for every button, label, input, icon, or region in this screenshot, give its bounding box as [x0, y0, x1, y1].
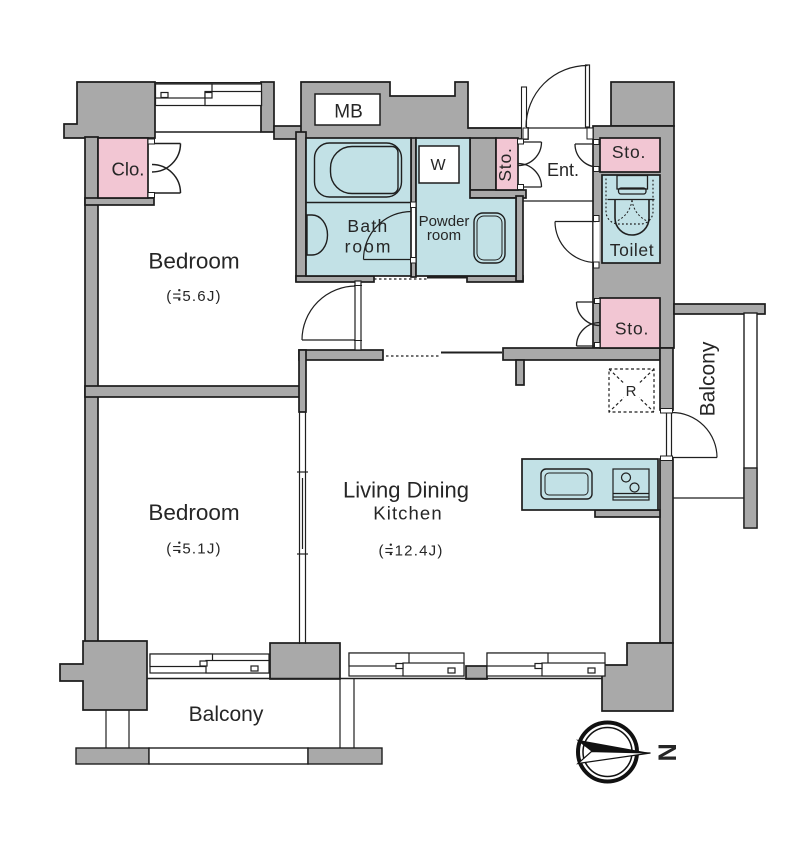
svg-text:W: W	[430, 157, 446, 174]
svg-text:Toilet: Toilet	[610, 240, 654, 260]
svg-text:Living Dining: Living Dining	[343, 478, 469, 503]
svg-text:Sto.: Sto.	[615, 319, 649, 339]
svg-text:Clo.: Clo.	[112, 159, 145, 180]
svg-text:Bath: Bath	[347, 216, 388, 236]
svg-text:R: R	[626, 383, 637, 400]
svg-text:Kitchen: Kitchen	[373, 503, 442, 524]
svg-text:(=5.1J): (=5.1J)	[166, 541, 222, 558]
svg-text:Sto.: Sto.	[495, 147, 515, 181]
svg-text:Bedroom: Bedroom	[148, 249, 239, 274]
svg-text:MB: MB	[334, 102, 363, 123]
svg-text:Bedroom: Bedroom	[148, 500, 239, 525]
svg-text:(=12.4J): (=12.4J)	[378, 543, 443, 560]
svg-text:Sto.: Sto.	[612, 142, 646, 162]
svg-text:room: room	[427, 227, 461, 244]
svg-text:(=5.6J): (=5.6J)	[166, 288, 222, 305]
svg-text:Balcony: Balcony	[189, 703, 264, 726]
svg-text:Balcony: Balcony	[697, 341, 720, 416]
svg-text:Ent.: Ent.	[547, 160, 579, 180]
svg-text:N: N	[652, 743, 680, 761]
svg-text:room: room	[345, 237, 393, 257]
